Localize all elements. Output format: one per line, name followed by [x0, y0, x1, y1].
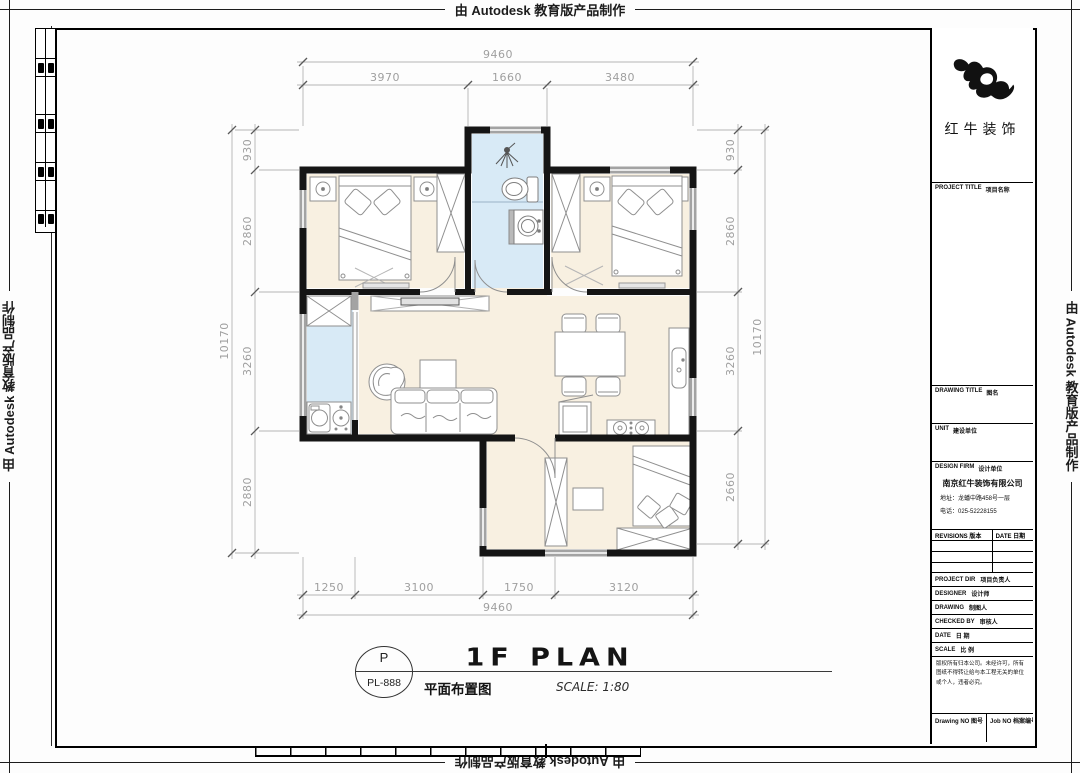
- field-design-firm: DESIGN FIRM设计单位 南京红牛装饰有限公司 地址：龙蟠中路458号一层…: [932, 462, 1033, 530]
- floor-plan: 9460 3970 1660 3480 930 2860 3260 2880 1…: [215, 30, 815, 642]
- dim-right-1: 930: [724, 139, 737, 162]
- field-label-cn: 设计单位: [978, 464, 1002, 473]
- watermark-line: [635, 9, 1080, 10]
- watermark-line: [9, 0, 10, 291]
- field-label-cn: 图名: [986, 388, 998, 397]
- plan-title: 1F PLAN: [420, 643, 680, 672]
- frame-fold-mark: [545, 744, 547, 758]
- field-label-en: UNIT: [935, 426, 949, 435]
- revisions-date-en: DATE: [996, 534, 1012, 540]
- field-scale: SCALE比 例: [932, 643, 1033, 657]
- watermark-text: 由 Autodesk 教育版产品制作: [0, 301, 19, 471]
- title-block: 红牛装饰 PROJECT TITLE项目名称 DRAWING TITLE图名 U…: [930, 28, 1033, 744]
- dim-left-total: 10170: [218, 322, 231, 360]
- copyright-notes: 版权所有归本公司。未经许可，所有图纸不得转让给与本工程无关的单位或个人，违者必究…: [932, 657, 1033, 714]
- watermark-left: 由 Autodesk 教育版产品制作: [1, 0, 17, 773]
- tv-icon: [401, 298, 459, 305]
- dim-left-3: 3260: [241, 346, 254, 376]
- field-label-en: DRAWING TITLE: [935, 388, 982, 397]
- field-project-dir: PROJECT DIR项目负责人: [932, 573, 1033, 587]
- field-date: DATE日 期: [932, 629, 1033, 643]
- dim-left-4: 2880: [241, 477, 254, 507]
- toilet-icon: [502, 177, 538, 202]
- revision-row: [932, 563, 1033, 573]
- dim-bottom-2: 3100: [404, 581, 434, 594]
- dim-left-2: 2860: [241, 216, 254, 246]
- desk: [573, 488, 603, 510]
- field-designer: DESIGNER设计师: [932, 587, 1033, 601]
- watermark-bottom: 由 Autodesk 教育版产品制作: [0, 755, 1080, 771]
- field-label-cn: 建设单位: [953, 426, 977, 435]
- plan-scale: SCALE: 1:80: [556, 680, 629, 694]
- watermark-line: [635, 763, 1080, 764]
- watermark-line: [1071, 0, 1072, 291]
- watermark-line: [0, 9, 445, 10]
- stove-icon: [607, 420, 655, 437]
- watermark-text: 由 Autodesk 教育版产品制作: [455, 0, 625, 19]
- dim-top-3: 3480: [605, 71, 635, 84]
- field-drawing-by: DRAWING制图人: [932, 601, 1033, 615]
- logo-section: 红牛装饰: [932, 28, 1033, 183]
- company-name: 南京红牛装饰有限公司: [932, 478, 1033, 489]
- company-address: 地址：龙蟠中路458号一层: [932, 493, 1033, 502]
- sheet-ref-letter: P: [355, 650, 413, 665]
- revision-row: [932, 541, 1033, 552]
- field-unit: UNIT建设单位: [932, 424, 1033, 462]
- sheet-number: PL-888: [355, 677, 413, 689]
- watermark-line: [9, 482, 10, 773]
- watermark-right: 由 Autodesk 教育版产品制作: [1063, 0, 1079, 773]
- sink-icon: [509, 210, 543, 244]
- sofa-icon: [391, 388, 497, 434]
- dim-bottom-3: 1750: [504, 581, 534, 594]
- frame-ruler: [255, 746, 641, 757]
- dim-bottom-total: 9460: [483, 601, 513, 614]
- dim-bottom-4: 3120: [609, 581, 639, 594]
- dim-right-4: 2660: [724, 472, 737, 502]
- field-label-en: DESIGN FIRM: [935, 464, 974, 473]
- revisions-label-en: REVISIONS: [935, 534, 968, 540]
- dim-bottom-1: 1250: [314, 581, 344, 594]
- revisions-date-cn: 日期: [1013, 534, 1025, 540]
- job-no-cell: Job NO 档案编号: [987, 714, 1033, 742]
- plan-subtitle: 平面布置图: [424, 678, 492, 698]
- revision-row: [932, 552, 1033, 563]
- sheet-page: 由 Autodesk 教育版产品制作 由 Autodesk 教育版产品制作 由 …: [0, 0, 1080, 773]
- dim-top-2: 1660: [492, 71, 522, 84]
- dim-right-3: 3260: [724, 346, 737, 376]
- drawing-no-cell: Drawing NO 图号: [932, 714, 987, 742]
- dim-top-1: 3970: [370, 71, 400, 84]
- field-label-cn: 项目名称: [986, 185, 1010, 194]
- dining-table: [555, 332, 625, 376]
- revisions-table: REVISIONS 版本 DATE 日期: [932, 530, 1033, 573]
- watermark-text: 由 Autodesk 教育版产品制作: [1062, 301, 1080, 471]
- watermark-line: [1071, 482, 1072, 773]
- dim-top-total: 9460: [483, 48, 513, 61]
- dim-right-2: 2860: [724, 216, 737, 246]
- field-label-en: PROJECT TITLE: [935, 185, 982, 194]
- company-phone: 电话：025-52228155: [932, 506, 1033, 515]
- dim-left-1: 930: [241, 139, 254, 162]
- field-drawing-title: DRAWING TITLE图名: [932, 386, 1033, 424]
- watermark-line: [0, 763, 445, 764]
- bull-logo-icon: [947, 54, 1019, 108]
- dim-right-total: 10170: [751, 318, 764, 356]
- drawing-number-row: Drawing NO 图号 Job NO 档案编号: [932, 714, 1033, 742]
- field-project-title: PROJECT TITLE项目名称: [932, 183, 1033, 386]
- watermark-top: 由 Autodesk 教育版产品制作: [0, 1, 1080, 17]
- revisions-label-cn: 版本: [969, 534, 981, 540]
- frame-grid-table: [35, 28, 56, 233]
- logo-name: 红牛装饰: [932, 119, 1033, 139]
- field-checked-by: CHECKED BY审核人: [932, 615, 1033, 629]
